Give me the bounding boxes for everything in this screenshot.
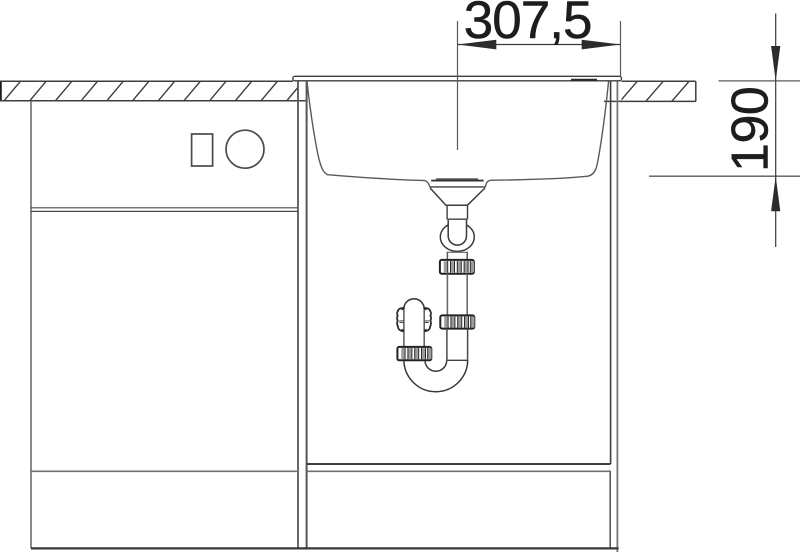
svg-text:307,5: 307,5: [464, 0, 592, 50]
svg-text:190: 190: [721, 87, 779, 172]
